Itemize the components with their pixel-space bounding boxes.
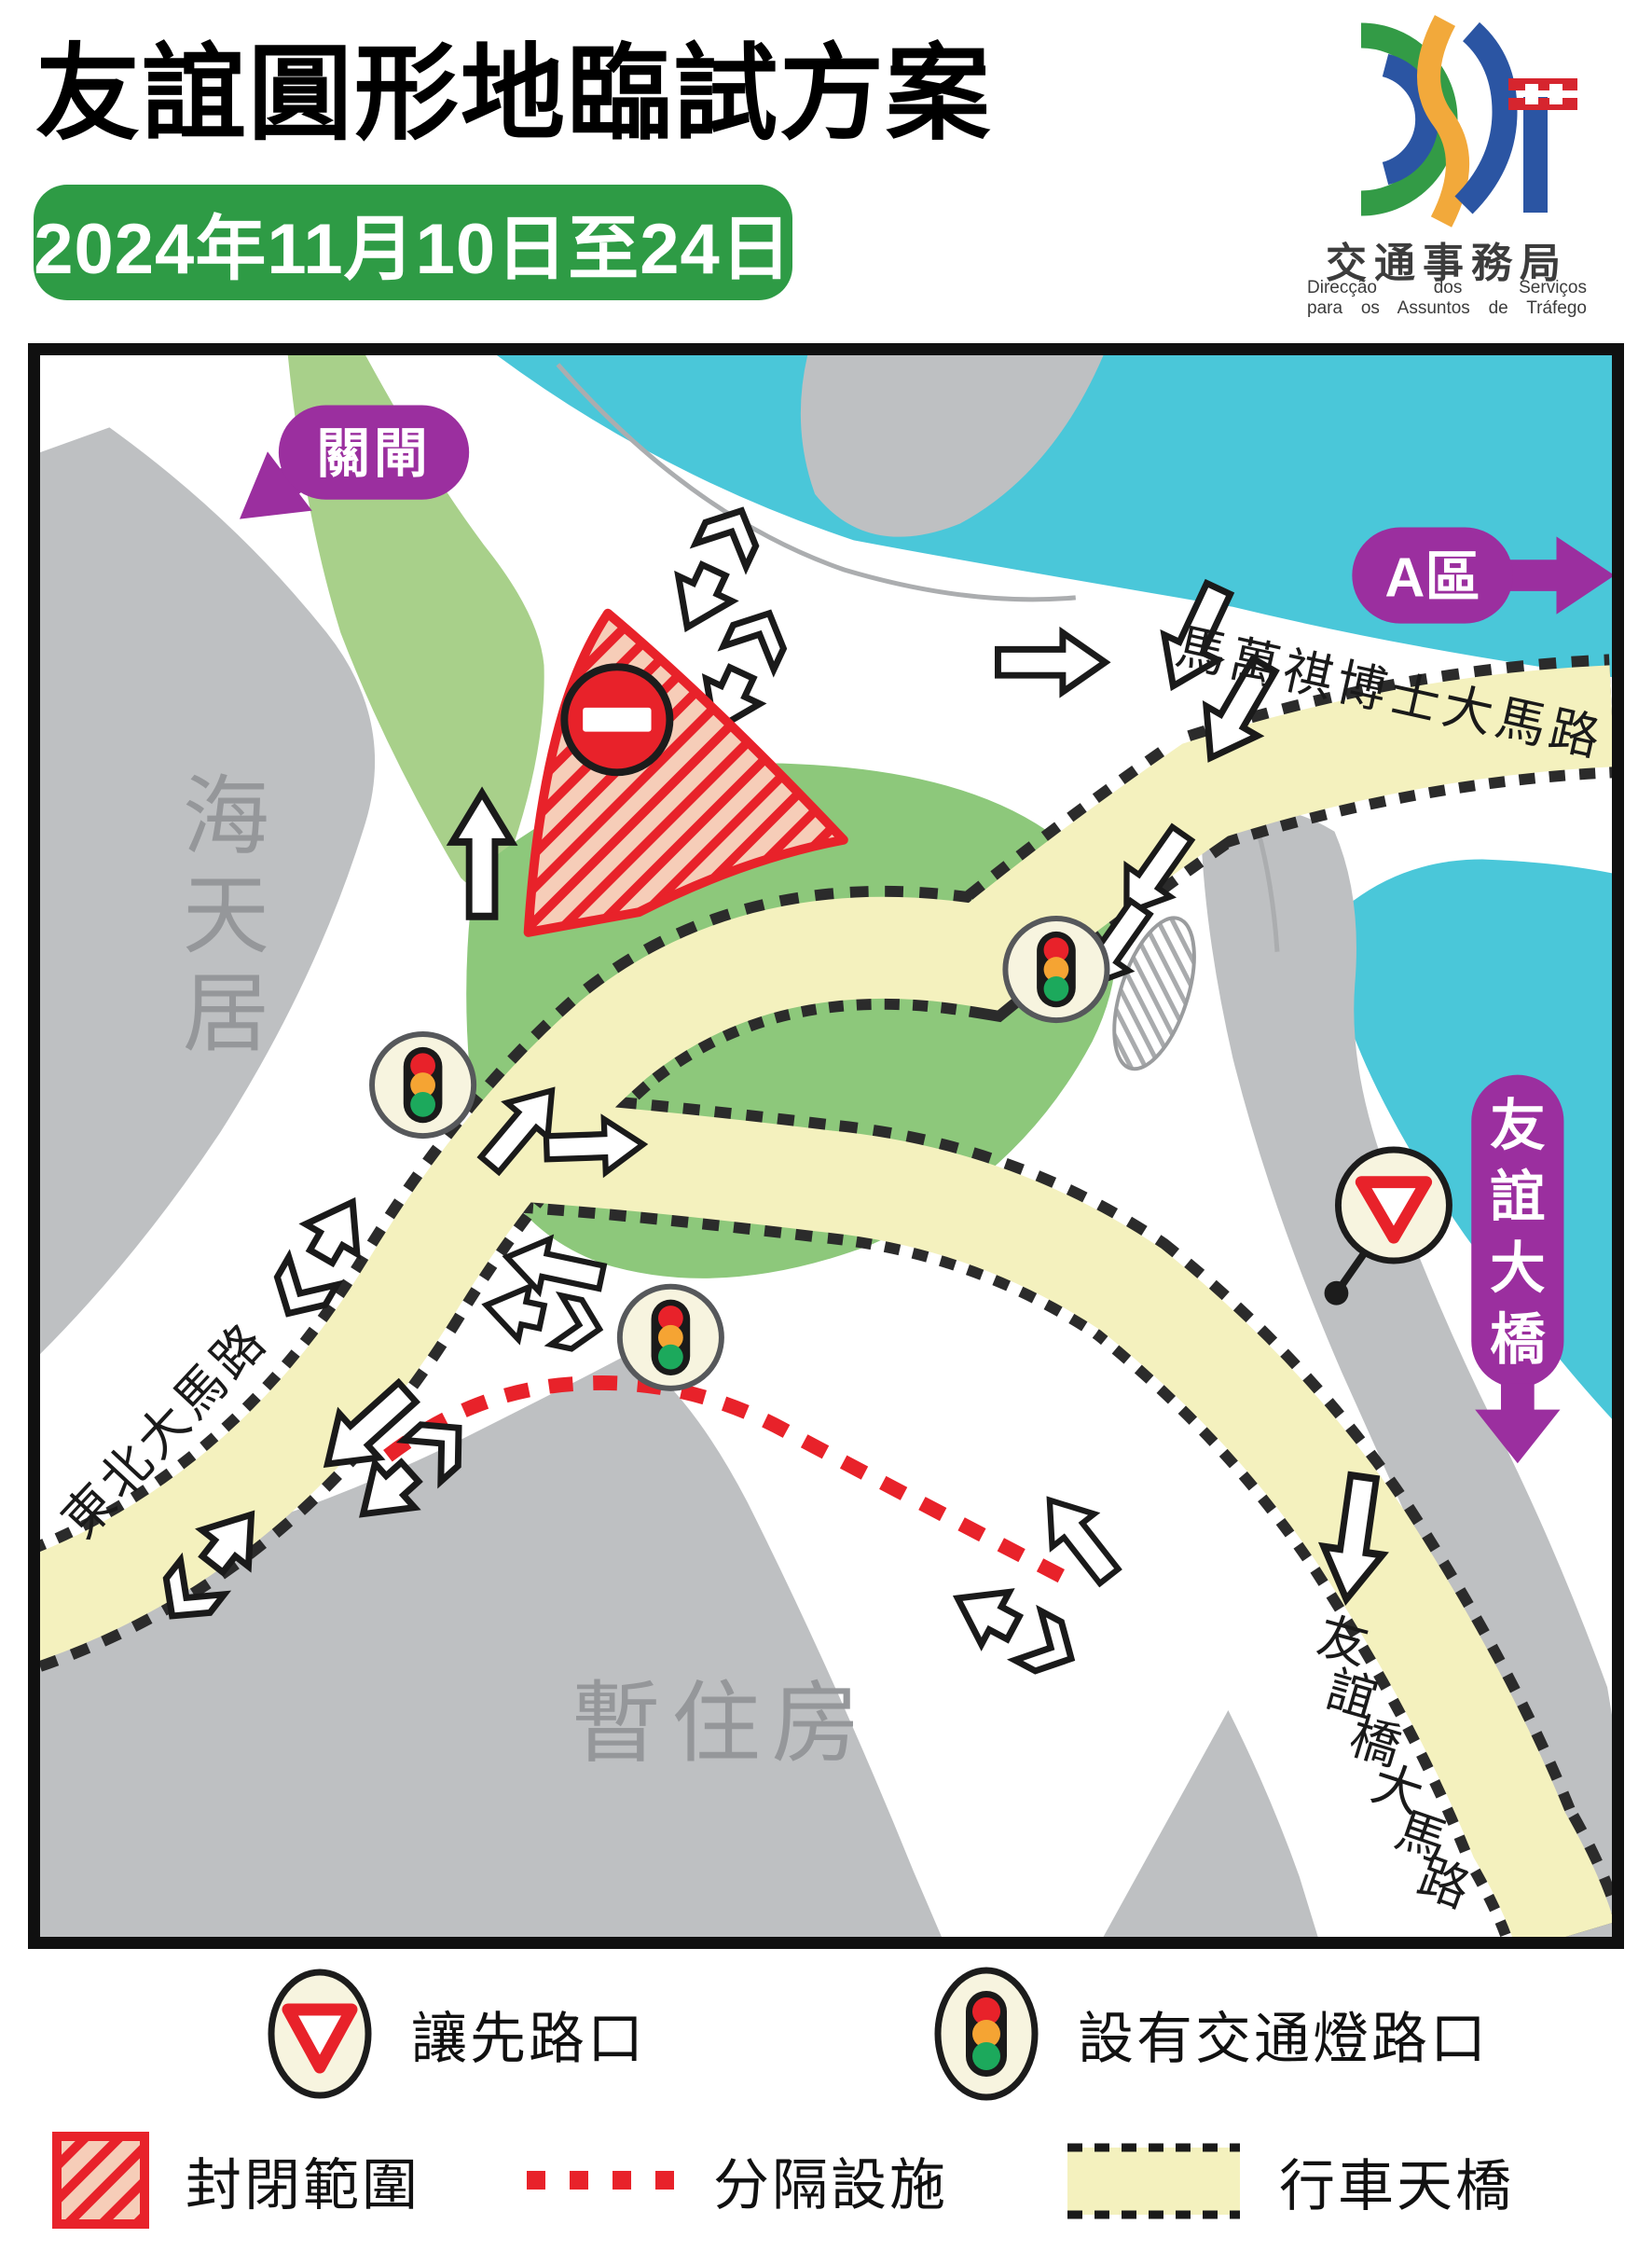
date-banner-text: 2024年11月10日至24日 bbox=[34, 191, 792, 294]
agency-pt-line2: para os Assuntos de Tráfego bbox=[1307, 298, 1587, 319]
divider-legend-icon bbox=[527, 2170, 676, 2190]
dsat-logo-icon bbox=[1303, 7, 1594, 231]
legend-row-1: 讓先路口 設有交通燈路口 bbox=[0, 1966, 1652, 2106]
no-entry-icon bbox=[564, 667, 669, 772]
agency-pt-line1: Direcção dos Serviços bbox=[1307, 278, 1587, 298]
traffic-map: 關閘 A區 友 誼 大 橋 海 天 居 暫住房 馬萬祺博士大馬路 東北大馬路 友 bbox=[28, 343, 1624, 1949]
legend-divider-label: 分隔設施 bbox=[713, 2140, 948, 2221]
page-title: 友誼圓形地臨試方案 bbox=[35, 9, 992, 160]
svg-text:天: 天 bbox=[183, 867, 269, 964]
yield-legend-icon bbox=[266, 1966, 374, 2102]
svg-text:居: 居 bbox=[183, 965, 269, 1062]
legend-signal-label: 設有交通燈路口 bbox=[1078, 1994, 1489, 2075]
svg-text:A區: A區 bbox=[1384, 546, 1480, 609]
legend-yield-label: 讓先路口 bbox=[411, 1994, 646, 2075]
closed-area-legend-icon bbox=[51, 2131, 150, 2230]
svg-text:大: 大 bbox=[1490, 1237, 1545, 1299]
svg-text:友: 友 bbox=[1490, 1095, 1546, 1157]
legend-closed-label: 封閉範圍 bbox=[186, 2140, 420, 2221]
date-banner: 2024年11月10日至24日 bbox=[34, 185, 792, 300]
svg-text:海: 海 bbox=[183, 768, 269, 865]
flyover-legend-icon bbox=[1067, 2138, 1240, 2224]
traffic-light-icon-east bbox=[1005, 919, 1107, 1020]
agency-name-pt: Direcção dos Serviços para os Assuntos d… bbox=[1307, 278, 1587, 319]
traffic-light-icon-west bbox=[372, 1034, 474, 1136]
svg-text:橋: 橋 bbox=[1490, 1308, 1546, 1371]
legend-flyover-label: 行車天橋 bbox=[1279, 2141, 1514, 2222]
traffic-light-icon-south bbox=[620, 1287, 722, 1389]
temp-housing-label: 暫住房 bbox=[571, 1675, 871, 1774]
traffic-scheme-notice: 友誼圓形地臨試方案 2024年11月10日至24日 交通事務局 Direcção… bbox=[0, 0, 1652, 2252]
svg-text:關閘: 關閘 bbox=[317, 424, 432, 484]
haitianju-label: 海 天 居 bbox=[183, 768, 269, 1062]
legend-row-2: 封閉範圍 分隔設施 行車天橋 bbox=[0, 2131, 1652, 2243]
svg-text:誼: 誼 bbox=[1490, 1166, 1545, 1228]
signal-legend-icon bbox=[932, 1966, 1040, 2102]
